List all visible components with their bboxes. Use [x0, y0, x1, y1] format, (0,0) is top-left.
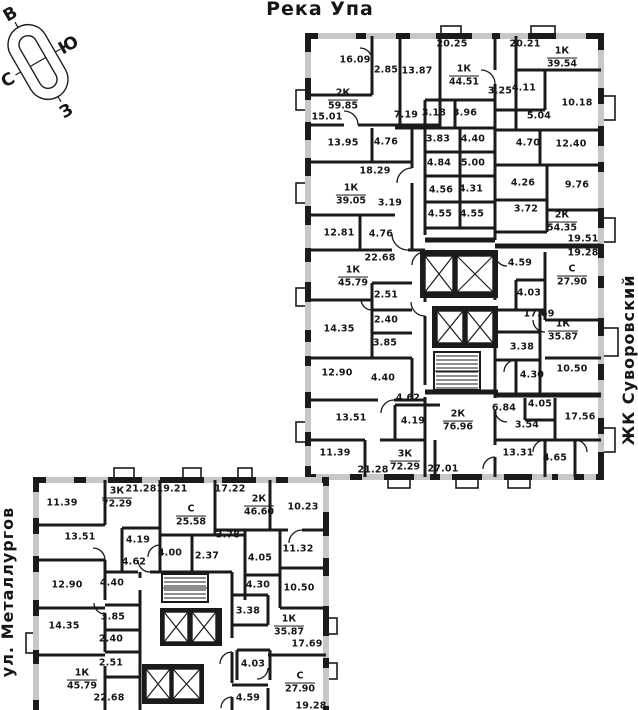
lower-elevator-core [142, 574, 222, 704]
compass-rose: В Ю С З [0, 0, 110, 141]
street-title: ул. Металлургов [0, 507, 17, 677]
compass-west-letter: З [56, 100, 76, 123]
upper-building [296, 26, 618, 488]
lower-building [26, 468, 337, 710]
floor-plan-drawing: В Ю С З [0, 0, 638, 710]
compass-south-letter: Ю [55, 32, 82, 59]
stairs-icon [162, 574, 208, 602]
river-title: Река Упа [266, 0, 374, 20]
complex-title: ЖК Суворовский [619, 275, 638, 446]
upper-elevator-core [420, 250, 498, 390]
floor-plan-page: В Ю С З 16.092.8513.8720.2520.213.254.11… [0, 0, 638, 710]
stairs-icon [434, 352, 480, 390]
compass-north-letter: С [0, 69, 19, 93]
compass-east-letter: В [0, 2, 21, 26]
